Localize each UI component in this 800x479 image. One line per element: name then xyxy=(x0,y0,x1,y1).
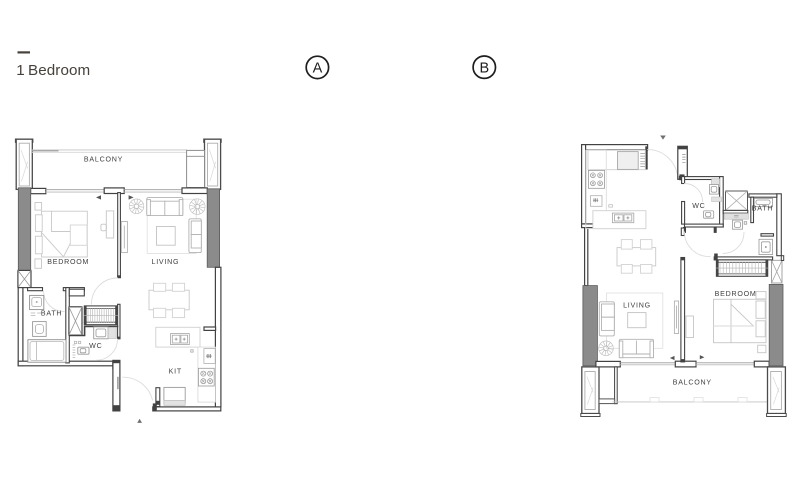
svg-text:BATH: BATH xyxy=(752,205,773,213)
svg-text:LIVING: LIVING xyxy=(623,302,651,310)
svg-text:WC: WC xyxy=(692,202,705,210)
svg-text:A: A xyxy=(313,61,323,77)
svg-text:BATH: BATH xyxy=(41,310,62,318)
svg-text:BEDROOM: BEDROOM xyxy=(715,290,757,298)
svg-text:BALCONY: BALCONY xyxy=(673,378,712,386)
svg-text:BEDROOM: BEDROOM xyxy=(47,258,89,266)
svg-text:B: B xyxy=(479,60,489,76)
svg-text:WC: WC xyxy=(89,342,102,350)
svg-text:KIT: KIT xyxy=(169,367,182,375)
svg-text:LIVING: LIVING xyxy=(152,258,180,266)
svg-text:1 Bedroom: 1 Bedroom xyxy=(16,62,90,79)
svg-text:BALCONY: BALCONY xyxy=(84,155,123,163)
